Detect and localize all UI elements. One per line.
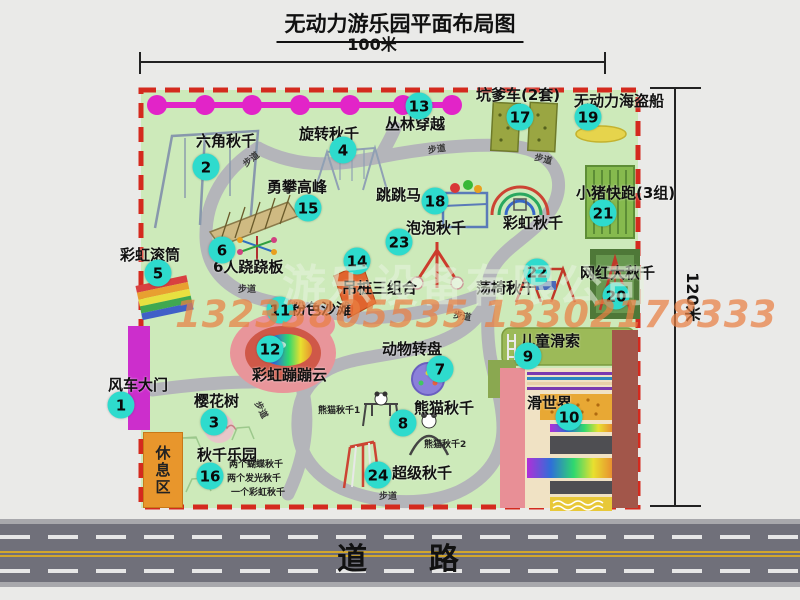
- pirate-ship-icon: [576, 126, 626, 142]
- windmill-gate-icon: [128, 326, 150, 430]
- net-swing-icon: [590, 249, 640, 319]
- road-label: 道 路: [0, 534, 800, 578]
- rest-area: 休息区: [143, 432, 183, 508]
- screenshot-root: 无动力游乐园平面布局图: [0, 0, 800, 600]
- height-dimension-label: 120米: [683, 272, 702, 322]
- park-map-canvas: 100米 120米: [0, 0, 800, 600]
- animal-turntable-icon: [412, 363, 444, 395]
- road: 道 路: [0, 519, 800, 587]
- piggy-run-icon: [586, 166, 634, 238]
- width-dimension-label: 100米: [347, 35, 397, 54]
